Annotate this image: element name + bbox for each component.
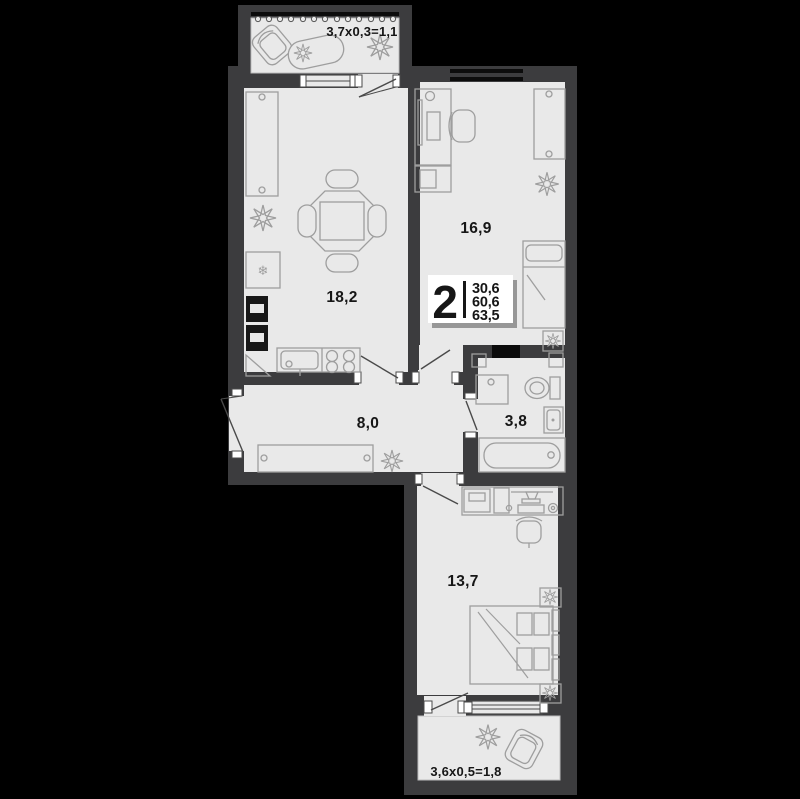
apartment-badge: 2 30,6 60,6 63,5 — [428, 275, 517, 328]
badge-rooms-count: 2 — [432, 276, 458, 328]
floorplan-canvas: ❄ — [0, 0, 800, 799]
bedroom-lower-window — [464, 701, 548, 714]
badge-divider — [463, 281, 466, 318]
bedroom-lower-floor — [417, 486, 558, 695]
balcony-upper-label: 3,7x0,3=1,1 — [326, 24, 397, 39]
office-chair-icon — [449, 110, 475, 142]
fridge-icon: ❄ — [246, 252, 280, 288]
snowflake-icon: ❄ — [258, 264, 269, 279]
bedroom-lower-label: 13,7 — [447, 573, 478, 590]
balcony-lower-label: 3,6x0,5=1,8 — [430, 764, 501, 779]
badge-area-total: 63,5 — [472, 308, 500, 324]
hallway-label: 8,0 — [357, 415, 379, 432]
kitchen-living-label: 18,2 — [326, 289, 357, 306]
floorplan-svg: ❄ — [0, 0, 800, 799]
hallway-floor — [244, 385, 463, 472]
entrance-door — [221, 389, 244, 458]
bathroom-label: 3,8 — [505, 413, 528, 430]
balcony-railing — [251, 12, 399, 16]
balcony-lower-door — [424, 693, 468, 716]
kitchen-balcony-window — [300, 75, 356, 87]
wall-shaft — [492, 345, 520, 358]
bedroom-upper-label: 16,9 — [460, 220, 491, 237]
bedroom-upper-vestibule-floor — [419, 345, 463, 372]
